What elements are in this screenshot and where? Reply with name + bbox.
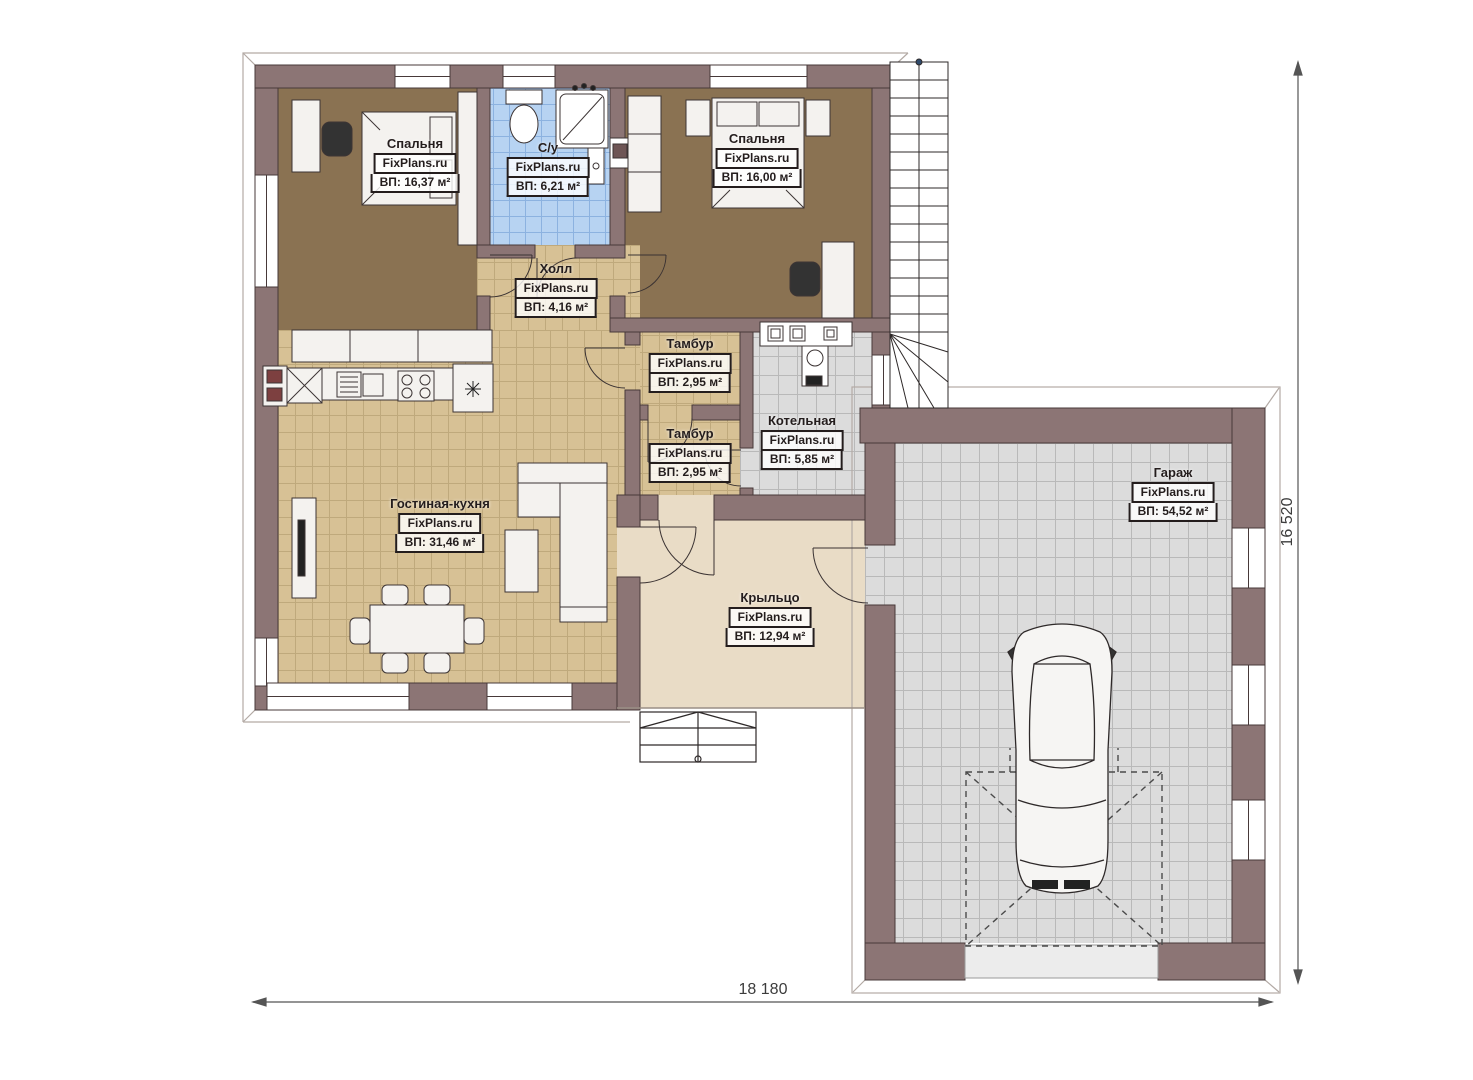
room-area: ВП: 4,16 м²	[515, 299, 597, 318]
room-area: ВП: 54,52 м²	[1129, 503, 1218, 522]
room-label-bathroom: С/у FixPlans.ru ВП: 6,21 м²	[507, 140, 590, 197]
watermark-text: FixPlans.ru	[374, 153, 457, 174]
room-name: Спальня	[729, 131, 785, 146]
room-label-bedroom2: Спальня FixPlans.ru ВП: 16,00 м²	[713, 131, 802, 188]
room-name: Гараж	[1154, 465, 1193, 480]
room-label-living: Гостиная-кухня FixPlans.ru ВП: 31,46 м²	[390, 496, 490, 553]
room-area: ВП: 2,95 м²	[649, 374, 731, 393]
bedroom1-floor	[278, 88, 490, 345]
dimension-height: 16 520	[1279, 498, 1297, 547]
room-area: ВП: 6,21 м²	[507, 178, 589, 197]
room-name: Тамбур	[666, 426, 713, 441]
watermark-text: FixPlans.ru	[649, 443, 732, 464]
watermark-text: FixPlans.ru	[761, 430, 844, 451]
room-area: ВП: 5,85 м²	[761, 451, 843, 470]
watermark-text: FixPlans.ru	[716, 148, 799, 169]
room-name: Гостиная-кухня	[390, 496, 490, 511]
room-label-porch: Крыльцо FixPlans.ru ВП: 12,94 м²	[726, 590, 815, 647]
room-label-boiler: Котельная FixPlans.ru ВП: 5,85 м²	[761, 413, 844, 470]
room-name: Крыльцо	[740, 590, 799, 605]
room-label-garage: Гараж FixPlans.ru ВП: 54,52 м²	[1129, 465, 1218, 522]
room-area: ВП: 16,37 м²	[371, 174, 460, 193]
watermark-text: FixPlans.ru	[1132, 482, 1215, 503]
staircase	[890, 59, 948, 408]
bedroom2-floor	[610, 88, 872, 332]
room-area: ВП: 31,46 м²	[396, 534, 485, 553]
room-area: ВП: 2,95 м²	[649, 464, 731, 483]
watermark-text: FixPlans.ru	[729, 607, 812, 628]
room-label-hall: Холл FixPlans.ru ВП: 4,16 м²	[515, 261, 598, 318]
dimension-width: 18 180	[739, 981, 788, 999]
room-name: Холл	[540, 261, 573, 276]
room-label-tambour2: Тамбур FixPlans.ru ВП: 2,95 м²	[649, 426, 732, 483]
porch-steps	[640, 712, 756, 762]
room-name: Тамбур	[666, 336, 713, 351]
garage-door-opening	[965, 945, 1158, 978]
room-label-bedroom1: Спальня FixPlans.ru ВП: 16,37 м²	[371, 136, 460, 193]
room-name: Спальня	[387, 136, 443, 151]
room-name: Котельная	[768, 413, 836, 428]
room-label-tambour1: Тамбур FixPlans.ru ВП: 2,95 м²	[649, 336, 732, 393]
watermark-text: FixPlans.ru	[507, 157, 590, 178]
floor-plan-canvas: Спальня FixPlans.ru ВП: 16,37 м² С/у Fix…	[0, 0, 1473, 1080]
watermark-text: FixPlans.ru	[515, 278, 598, 299]
watermark-text: FixPlans.ru	[399, 513, 482, 534]
room-name: С/у	[538, 140, 558, 155]
room-area: ВП: 16,00 м²	[713, 169, 802, 188]
room-area: ВП: 12,94 м²	[726, 628, 815, 647]
watermark-text: FixPlans.ru	[649, 353, 732, 374]
